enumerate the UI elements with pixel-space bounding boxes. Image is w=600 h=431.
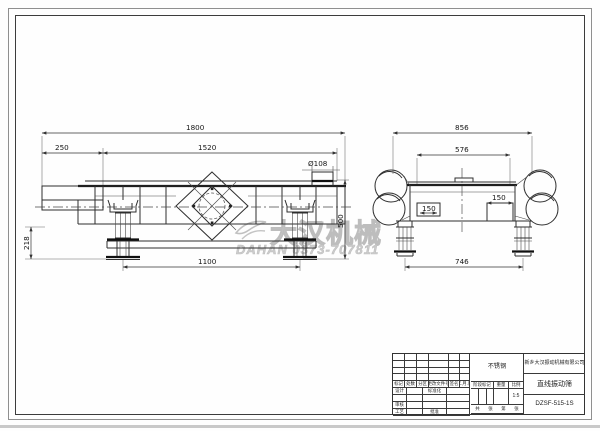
dim-body-width: 576 <box>455 145 469 154</box>
dim-motor-right: 150 <box>492 193 506 202</box>
change-header-row: 标记 处数 分区 更改文件号 签名 年.月.日 <box>393 381 471 388</box>
side-view-body <box>35 172 352 224</box>
role-standardize: 标准化 <box>423 388 447 395</box>
dim-outlet-dia: Ø108 <box>308 159 328 168</box>
stage-value-row: 1:5 <box>471 389 524 405</box>
vibrator-mount-diamond <box>176 172 248 240</box>
side-view-extension-lines <box>25 136 349 271</box>
end-view-motor-right <box>515 170 558 225</box>
dim-base-height: 218 <box>22 236 31 250</box>
dim-overall-width: 856 <box>455 123 469 132</box>
side-view: 1800 250 1520 Ø108 1100 218 500 <box>22 123 352 271</box>
header-scale: 比例 <box>509 382 524 389</box>
role-process: 工艺 <box>393 409 407 416</box>
header-stage-mark: 阶段标记 <box>471 382 494 389</box>
dim-inlet-offset: 250 <box>55 143 69 152</box>
dim-overall-length: 1800 <box>186 123 205 132</box>
dim-motor-left: 150 <box>422 204 436 213</box>
model-number: DZSF-515-1S <box>524 395 585 414</box>
header-mark: 标记 <box>393 381 405 388</box>
drawing-sheet: { "watermark": { "brand_cn": "大汉机械", "ph… <box>0 0 600 431</box>
sheet-row: 共 张 第 张 <box>471 405 524 414</box>
header-change-doc: 更改文件号 <box>429 381 449 388</box>
title-block-right-section: 新乡大汉振动机械有限公司 直线振动筛 DZSF-515-1S <box>524 354 585 414</box>
change-record-grid <box>393 354 471 381</box>
sheet-no-label: 第 <box>501 407 505 411</box>
role-design: 设计 <box>393 388 407 395</box>
header-zone: 分区 <box>417 381 429 388</box>
company-name: 新乡大汉振动机械有限公司 <box>524 354 585 374</box>
dim-end-base-span: 746 <box>455 257 469 266</box>
role-review: 审核 <box>393 402 407 409</box>
sheet-total-label: 共 <box>475 407 479 411</box>
stage-header-row: 阶段标记 重量 比例 <box>471 382 524 389</box>
end-view: 856 576 746 150 150 <box>373 123 558 271</box>
material-cell: 不锈钢 <box>471 354 524 382</box>
dim-base-span: 1100 <box>198 257 217 266</box>
end-view-motor-left <box>373 170 410 225</box>
end-view-leg-right <box>512 221 534 256</box>
role-approve: 批准 <box>423 409 447 416</box>
title-block-left-section: 标记 处数 分区 更改文件号 签名 年.月.日 设计 标准化 审核 工艺 批准 <box>393 354 471 414</box>
header-weight: 重量 <box>494 382 509 389</box>
dim-screen-length: 1520 <box>198 143 217 152</box>
weight-cell <box>494 389 509 405</box>
scale-cell: 1:5 <box>509 389 524 405</box>
sheet-no-unit: 张 <box>514 407 518 411</box>
side-view-base-beam <box>107 241 316 248</box>
end-view-leg-left <box>394 221 416 256</box>
title-block-middle-section: 不锈钢 阶段标记 重量 比例 1:5 共 张 第 张 <box>471 354 524 414</box>
header-count: 处数 <box>405 381 417 388</box>
header-sign: 签名 <box>449 381 460 388</box>
header-date: 年.月.日 <box>460 381 470 388</box>
sheet-total-unit: 张 <box>488 407 492 411</box>
product-name: 直线振动筛 <box>524 374 585 395</box>
signature-grid: 设计 标准化 审核 工艺 批准 <box>393 388 471 416</box>
title-block: 标记 处数 分区 更改文件号 签名 年.月.日 设计 标准化 审核 工艺 批准 … <box>392 353 585 415</box>
